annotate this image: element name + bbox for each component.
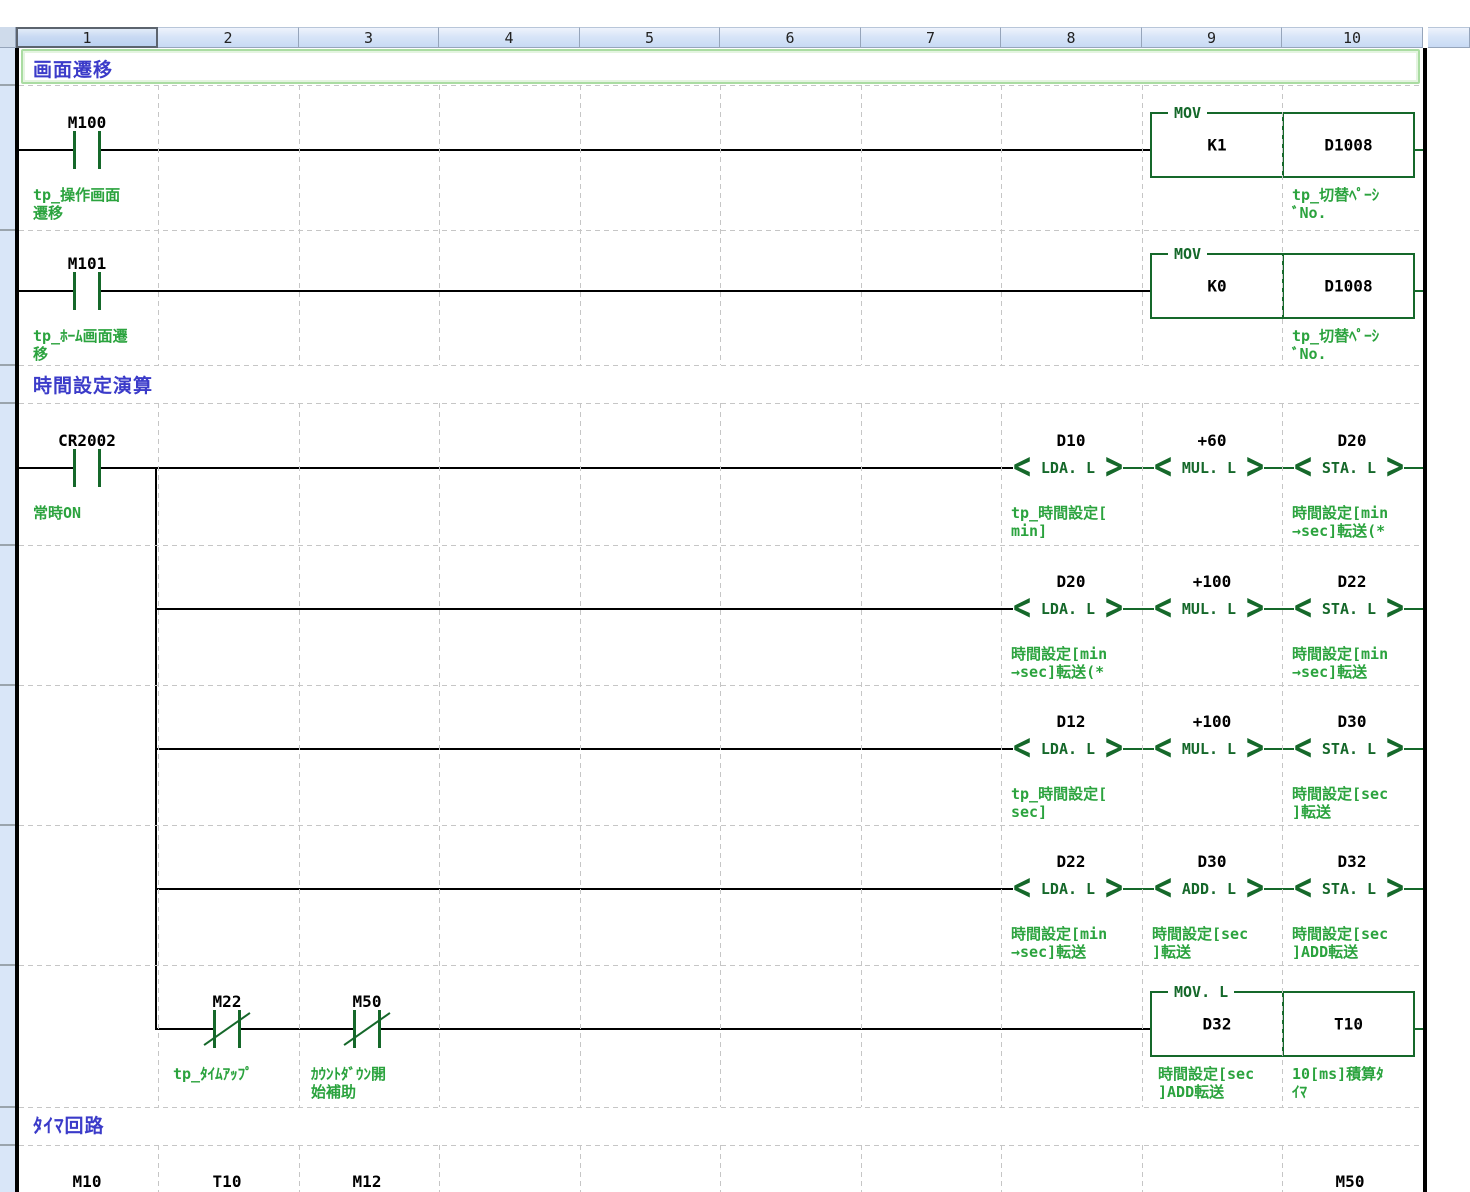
grid-line <box>19 545 1423 546</box>
grid-line <box>1142 85 1143 365</box>
grid-line <box>720 1145 721 1192</box>
grid-line <box>1142 403 1143 1107</box>
margin-tick <box>0 684 15 686</box>
grid-line <box>158 403 159 1107</box>
margin-tick <box>0 824 15 826</box>
grid-line <box>580 403 581 1107</box>
grid-line <box>720 85 721 365</box>
grid-line <box>1001 85 1002 365</box>
grid-line <box>1142 1145 1143 1192</box>
grid-line <box>19 230 1423 231</box>
margin-tick <box>0 964 15 966</box>
grid-line <box>299 85 300 365</box>
contact-t10[interactable]: T10 <box>157 1172 297 1191</box>
grid-line <box>19 85 1423 86</box>
contact-m10[interactable]: M10 <box>17 1172 157 1191</box>
grid-line <box>19 1107 1423 1108</box>
grid-line <box>580 85 581 365</box>
grid-line <box>580 1145 581 1192</box>
grid-line <box>1282 403 1283 1107</box>
grid-line <box>19 965 1423 966</box>
margin-tick <box>0 402 15 404</box>
grid-line <box>439 85 440 365</box>
grid-line <box>299 1145 300 1192</box>
grid-line <box>19 825 1423 826</box>
rung-8: M10 T10 M12 M50 <box>0 0 1470 1192</box>
grid-line <box>720 403 721 1107</box>
margin-tick <box>0 229 15 231</box>
grid-line <box>861 85 862 365</box>
grid-line <box>1001 1145 1002 1192</box>
grid-line <box>158 85 159 365</box>
grid-line <box>1282 1145 1283 1192</box>
margin-tick <box>0 544 15 546</box>
grid-line <box>1001 403 1002 1107</box>
margin-tick <box>0 1106 15 1108</box>
grid-line <box>158 1145 159 1192</box>
grid-line <box>19 403 1423 404</box>
grid-line <box>19 365 1423 366</box>
grid-line <box>439 1145 440 1192</box>
grid-line <box>19 1145 1423 1146</box>
grid-line <box>439 403 440 1107</box>
coil-m50[interactable]: M50 <box>1280 1172 1420 1191</box>
contact-m12[interactable]: M12 <box>297 1172 437 1191</box>
margin-tick <box>0 364 15 366</box>
grid-line <box>19 685 1423 686</box>
margin-tick <box>0 1144 15 1146</box>
grid-line <box>1282 85 1283 365</box>
grid-line <box>861 1145 862 1192</box>
margin-tick <box>0 84 15 86</box>
grid-line <box>861 403 862 1107</box>
grid-line <box>299 403 300 1107</box>
ladder-editor-canvas: 1 2 3 4 5 6 7 8 9 10 画面遷移 M100 tp_操作画面 遷… <box>0 0 1470 1192</box>
